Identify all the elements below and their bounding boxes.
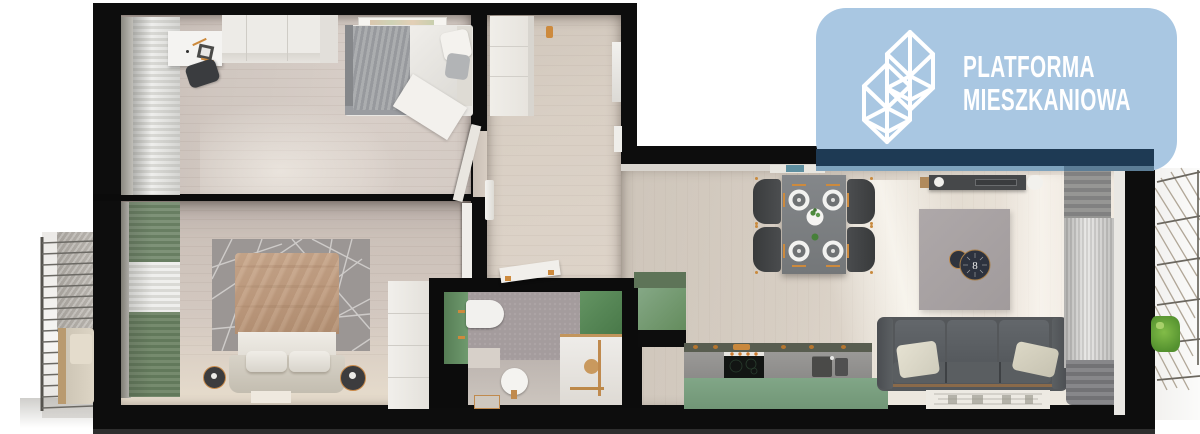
- svg-text:8: 8: [972, 260, 978, 272]
